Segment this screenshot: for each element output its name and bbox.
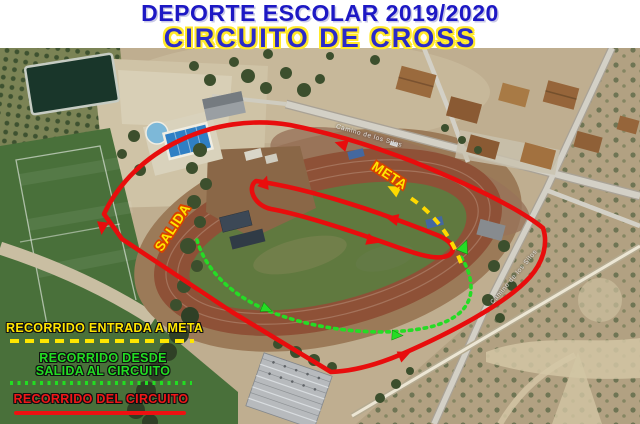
legend-circuito-label: RECORRIDO DEL CIRCUITO [6, 392, 196, 406]
legend-circuito-line [14, 411, 186, 415]
legend-entrada-meta-label: RECORRIDO ENTRADA A META [6, 321, 196, 335]
page-subtitle: CIRCUITO DE CROSS [0, 23, 640, 54]
legend-salida-circuito-line [10, 381, 192, 385]
legend-entrada-meta-line [10, 339, 194, 343]
poster: DEPORTE ESCOLAR 2019/2020 CIRCUITO DE CR… [0, 0, 640, 424]
legend-salida-circuito-label-line2: SALIDA AL CIRCUITO [8, 364, 198, 378]
legend-salida-circuito-label-line1: RECORRIDO DESDE [8, 351, 198, 365]
